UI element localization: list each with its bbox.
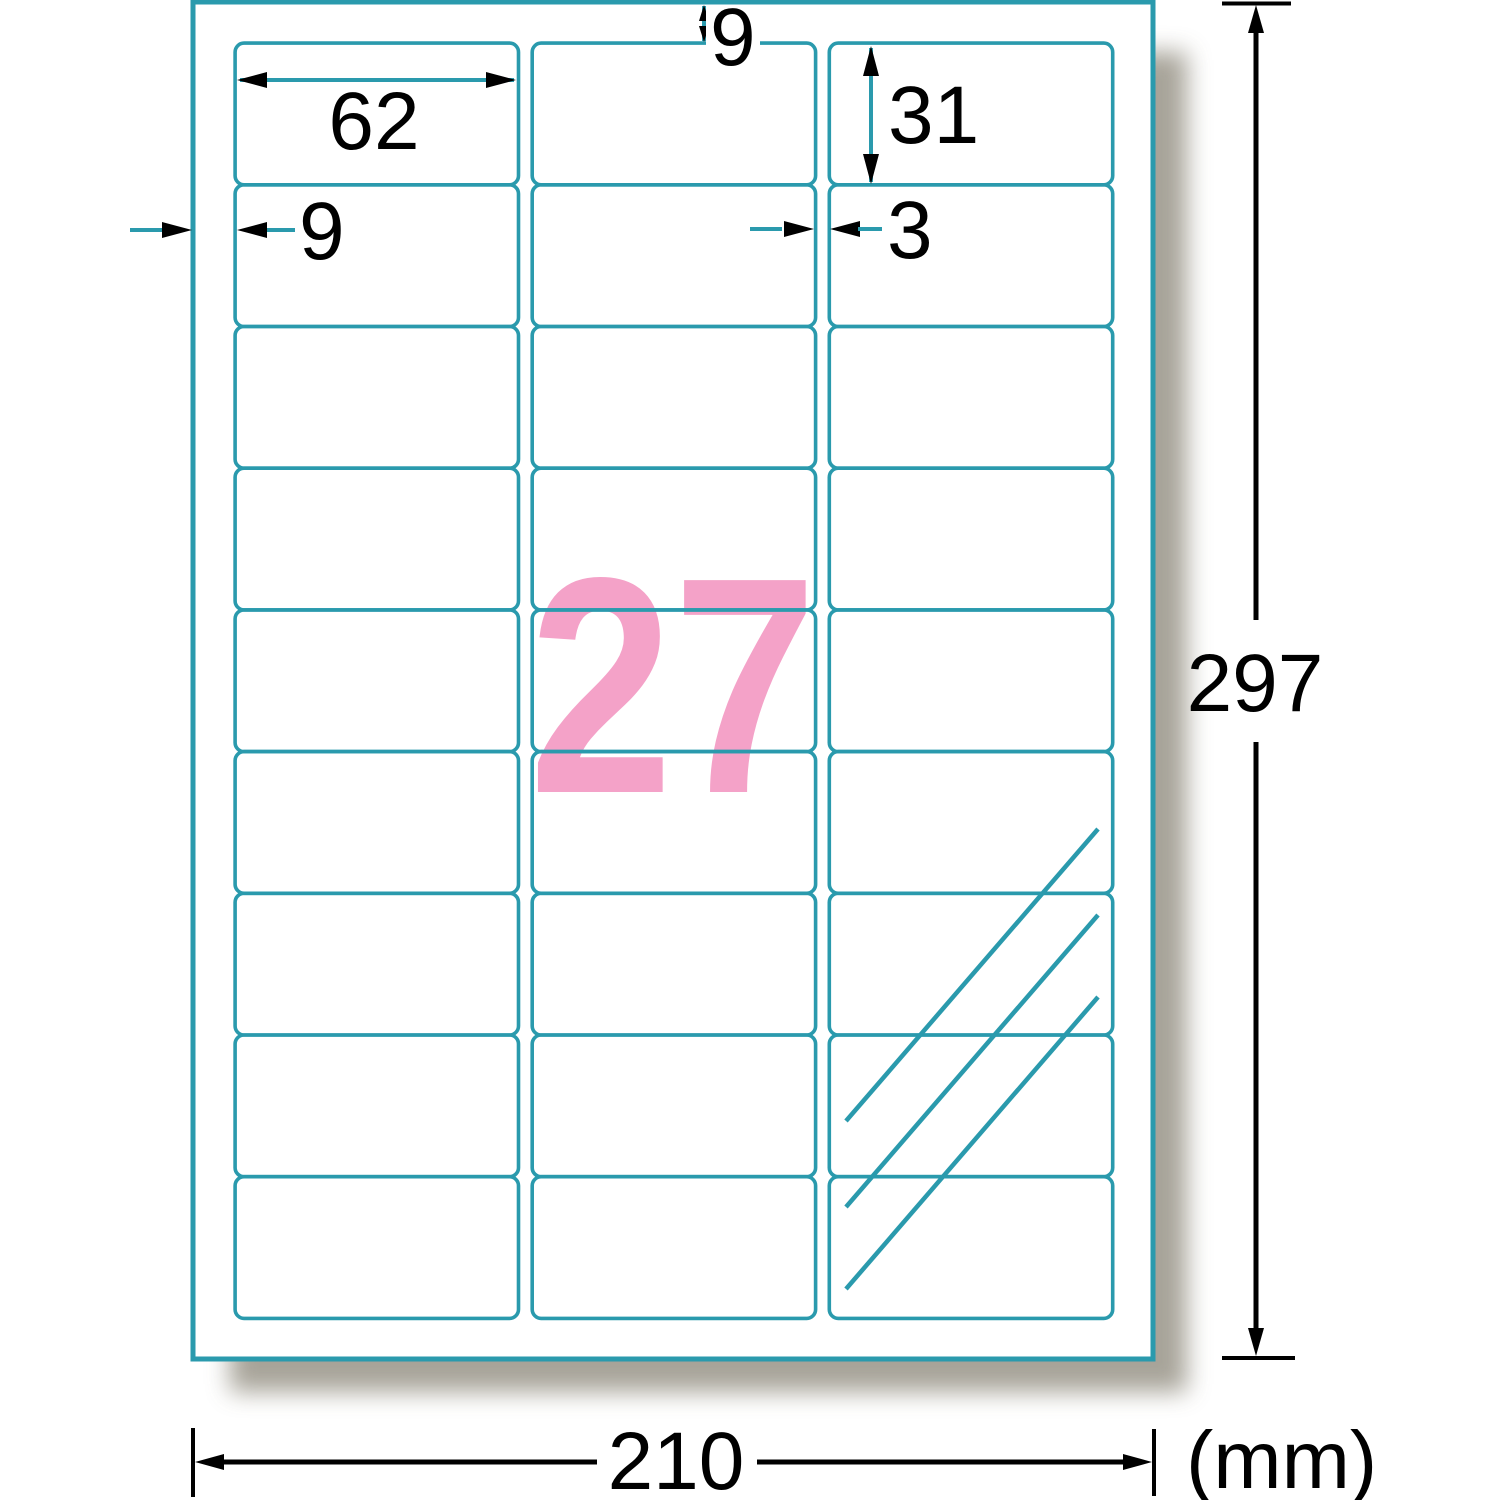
svg-text:9: 9	[710, 0, 756, 83]
svg-text:31: 31	[888, 70, 979, 161]
svg-text:9: 9	[299, 186, 345, 277]
svg-text:62: 62	[328, 76, 419, 167]
svg-text:297: 297	[1187, 638, 1324, 729]
svg-text:210: 210	[608, 1416, 745, 1500]
svg-text:(mm): (mm)	[1186, 1415, 1377, 1500]
svg-text:27: 27	[529, 514, 817, 858]
svg-text:3: 3	[887, 185, 933, 276]
